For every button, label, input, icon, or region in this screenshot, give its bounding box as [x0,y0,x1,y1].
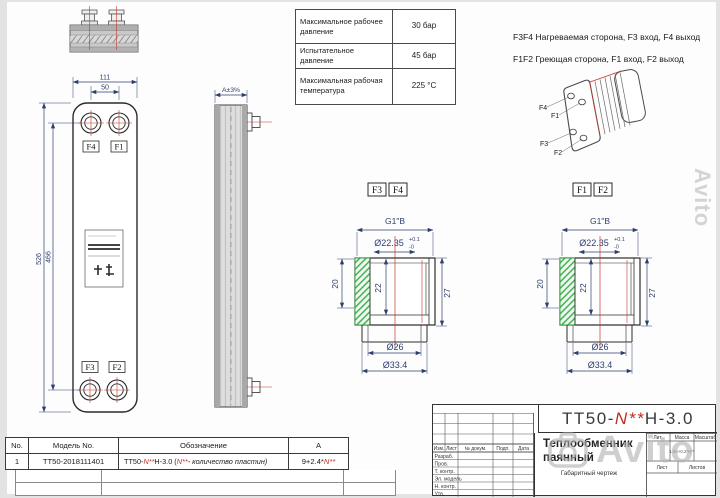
front-view: F4 F1 F3 F2 111 [28,73,184,423]
parts-table-continuation [15,470,396,496]
spec-row: Испытательное давление 45 бар [296,44,456,69]
thread-label: G1"B [590,216,610,226]
spec-value: 30 бар [393,10,456,44]
col-izm: Изм. [434,446,445,452]
desig-part: H-3.0 ( [154,457,176,466]
divider [343,470,344,495]
iso-label-f1: F1 [551,113,559,120]
parts-data-row: 1 ТТ50-2018111401 ТТ50-N**H-3.0 (N**- ко… [6,454,349,470]
spec-value: 225 °C [393,68,456,104]
col-data: Дата [518,446,529,452]
side-body [215,105,247,407]
header-mass: Масса [675,435,690,441]
dim-thickness-label: A±3% [222,87,240,94]
spec-value: 45 бар [393,44,456,69]
tol-up: +0.1 [614,237,625,243]
dim-dia-inner: Ø26 [591,342,608,352]
dim-height: 27 [647,288,657,298]
col-no: No. [6,438,29,454]
product-title-cell: Теплообменник паянный Габаритный чертеж [534,433,646,497]
title-block-right-grid: Лит. Масса Масштаб 1.84+0.2*N** Лист Лис… [646,433,717,497]
col-model: Модель No. [29,438,119,454]
drawing-number-suffix: H-3.0 [645,409,694,429]
col-podp: Подп. [496,446,509,452]
cell-a-formula: 9+2.4*N** [289,454,349,470]
top-view-body [70,25,138,52]
nameplate-sticker [85,230,123,287]
iso-label-f2: F2 [554,150,562,157]
fitting-section [355,236,435,348]
iso-view: F4 F1 F3 F2 [533,66,673,196]
spec-label: Максимальное рабочее давление [296,10,393,44]
dim-dia-inner: Ø26 [386,342,403,352]
document-type: Габаритный чертеж [543,470,635,477]
bore-label: Ø22.35 [374,238,404,248]
cell-no: 1 [6,454,29,470]
dim-depth2: 22 [578,283,588,293]
side-view: A±3% [193,83,285,418]
title-block: ТТ50-N**H-3.0 Изм. Лист № докум. Подп. Д… [432,404,716,496]
col-a: A [289,438,349,454]
row-tkontr: Т. контр. [435,469,455,475]
port-label-f2: F2 [113,362,122,372]
row-prov: Пров. [435,461,449,467]
a-n: N** [324,457,335,466]
dim-port-height-label: 466 [46,251,53,263]
divider [16,482,395,483]
row-elmodel: Эл. модель [435,476,463,482]
row-razrab: Разраб. [435,454,454,460]
col-doc: № докум. [465,446,487,452]
port-label-f4: F4 [87,142,97,152]
spec-row: Максимальная рабочая температура 225 °C [296,68,456,104]
dim-port-width-label: 50 [101,85,109,92]
spec-label: Максимальная рабочая температура [296,68,393,104]
header-lit: Лит. [653,435,662,441]
iso-label-f3: F3 [540,141,548,148]
fitting-section [560,236,640,348]
dim-height-label: 526 [36,253,43,265]
dim-width-label: 111 [100,75,111,82]
spec-label: Испытательное давление [296,44,393,69]
detail-tag-2: F4 [393,186,403,196]
col-designation: Обозначение [119,438,289,454]
cell-model: ТТ50-2018111401 [29,454,119,470]
dim-height: 27 [442,288,452,298]
desig-n: N** [177,457,188,466]
flow-notes: F3F4 Нагреваемая сторона, F3 вход, F4 вы… [513,26,700,70]
cell-designation: ТТ50-N**H-3.0 (N**- количество пластин) [119,454,289,470]
sheet-label: Лист [657,465,669,471]
detail-view-f1f2: F1 F2 G1"B Ø22.35 +0.1 -0 20 [527,180,677,395]
iso-back-plate [613,68,646,124]
dim-dia-outer: Ø33.4 [588,360,613,370]
title-block-left-grid: Изм. Лист № докум. Подп. Дата Разраб. Пр… [433,413,534,497]
product-name-line1: Теплообменник [543,438,646,452]
spec-row: Максимальное рабочее давление 30 бар [296,10,456,44]
iso-label-f4: F4 [539,105,547,112]
tol-dn: -0 [409,245,414,251]
tol-dn: -0 [614,245,619,251]
thread-label: G1"B [385,216,405,226]
bore-label: Ø22.35 [579,238,609,248]
detail-tag-1: F3 [372,186,382,196]
product-name-line2: паянный [543,452,646,466]
spec-table: Максимальное рабочее давление 30 бар Исп… [295,9,456,105]
dim-dia-outer: Ø33.4 [383,360,408,370]
drawing-number: ТТ50-N**H-3.0 [538,405,717,433]
desig-part: ТТ50- [124,457,143,466]
parts-header-row: No. Модель No. Обозначение A [6,438,349,454]
drawing-number-n: N** [615,409,645,429]
col-list: Лист [446,446,458,452]
parts-table: No. Модель No. Обозначение A 1 ТТ50-2018… [5,437,349,470]
tol-up: +0.1 [409,237,420,243]
drawing-number-prefix: ТТ50- [562,409,615,429]
desig-n: N** [143,457,154,466]
port-label-f3: F3 [86,362,95,372]
header-scale: Масштаб [695,435,717,441]
detail-view-f3f4: F3 F4 G1"B Ø22.35 +0.1 -0 20 [322,180,472,395]
top-view [58,4,153,59]
dim-depth2: 22 [373,283,383,293]
dim-depth1: 20 [535,279,545,289]
row-nkontr: Н. контр. [435,484,456,490]
dim-depth1: 20 [330,279,340,289]
detail-tag-2: F2 [598,186,608,196]
sheets-label: Листов [689,465,706,471]
divider [101,470,102,495]
a-part: 9+2.4* [302,457,324,466]
note-heated-side: F3F4 Нагреваемая сторона, F3 вход, F4 вы… [513,26,700,48]
mass-value: 1.84+0.2*N** [670,449,695,454]
detail-tag-1: F1 [577,186,587,196]
row-utv: Утв. [435,491,445,497]
port-label-f1: F1 [115,142,124,152]
desig-part: - количество пластин) [188,457,268,466]
